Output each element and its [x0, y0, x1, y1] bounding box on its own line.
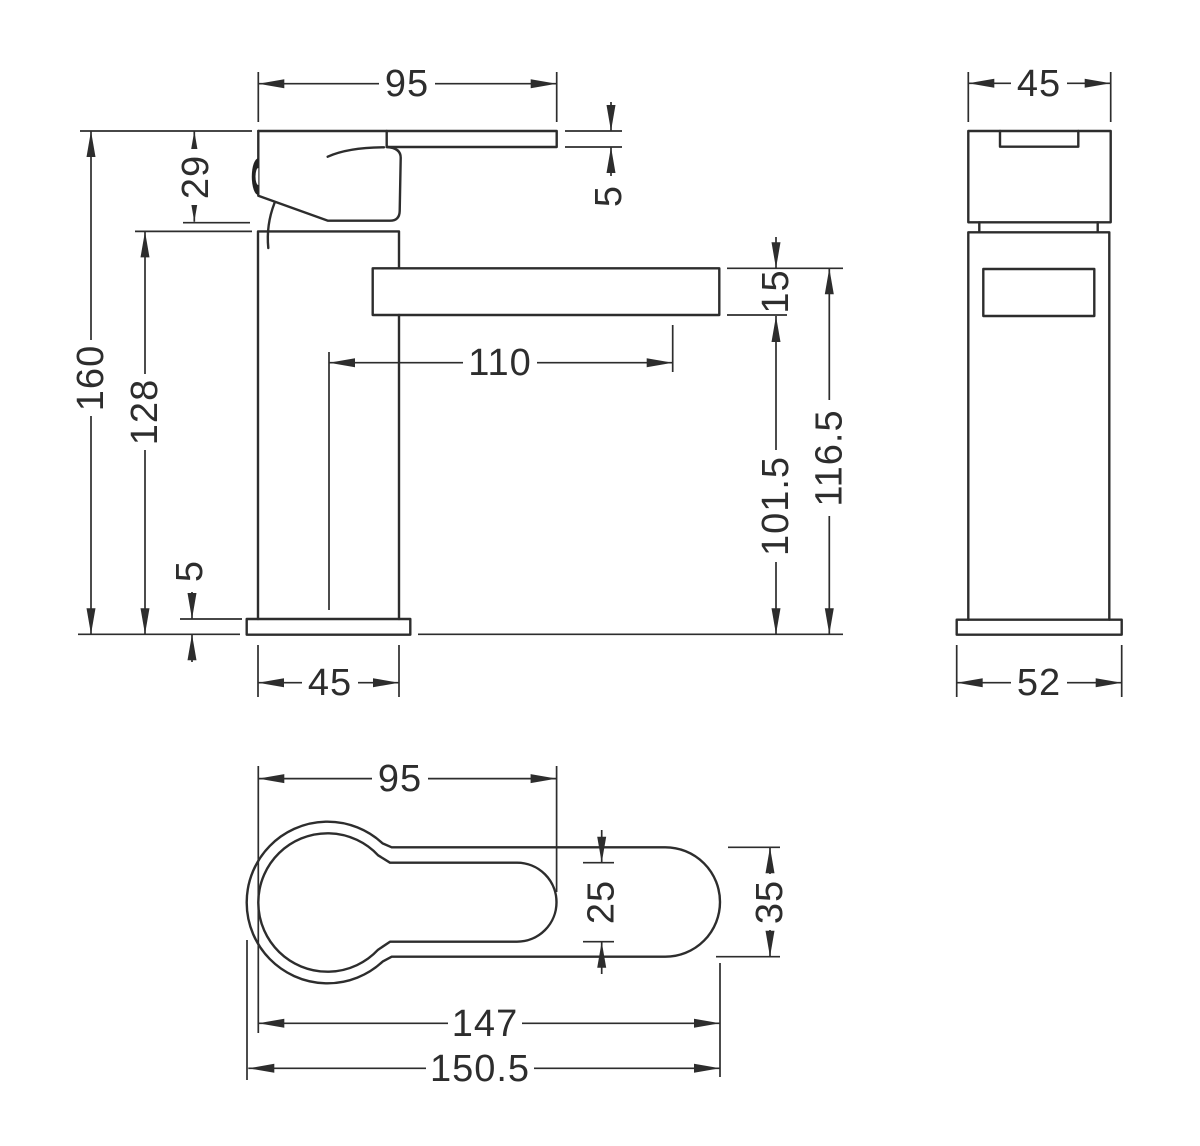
side-lever-notch [1000, 131, 1078, 147]
side-base-outline [957, 620, 1122, 635]
dim-front-body-width: 45 [258, 645, 399, 704]
arrowhead [531, 79, 557, 88]
dim-label: 150.5 [430, 1048, 530, 1090]
arrowhead [329, 358, 355, 367]
tap-technical-drawing: 95 5 29 160 128 [0, 0, 1200, 1146]
arrowhead [188, 593, 197, 619]
front-base-outline [247, 619, 411, 635]
arrowhead [772, 242, 781, 268]
dim-top-handle-width: 25 [581, 830, 623, 974]
dim-front-total-height: 160 [70, 131, 112, 634]
dim-label: 29 [175, 155, 217, 199]
arrowhead [597, 837, 606, 863]
arrowhead [772, 608, 781, 634]
front-lever-outline [258, 131, 556, 147]
arrowhead [373, 678, 399, 687]
dim-label: 95 [385, 63, 429, 105]
arrowhead [258, 79, 284, 88]
side-view [957, 131, 1122, 635]
front-handle-contour-line [328, 147, 384, 156]
dim-label: 160 [70, 345, 112, 411]
arrowhead [141, 608, 150, 634]
dim-front-spout-offset: 110 [329, 325, 673, 610]
dim-label: 45 [1017, 63, 1061, 105]
dim-front-lever-length: 95 [258, 63, 556, 122]
dim-label: 15 [755, 269, 797, 313]
arrowhead [531, 774, 557, 783]
arrowhead [772, 316, 781, 342]
dim-label: 95 [378, 758, 422, 800]
side-outlet-outline [983, 269, 1094, 316]
front-handle-outline [258, 131, 400, 221]
dim-label: 116.5 [808, 409, 850, 506]
arrowhead [188, 634, 197, 660]
dim-side-base-width: 52 [957, 645, 1122, 704]
dim-top-handle-length: 95 [258, 758, 556, 1033]
arrowhead [825, 608, 834, 634]
arrowhead [248, 1064, 274, 1073]
dim-top-spout-width: 35 [716, 847, 791, 956]
top-outer-outline [247, 822, 720, 984]
dim-front-handle-height: 29 [80, 131, 252, 223]
arrowhead [607, 105, 616, 131]
technical-drawing-page: 95 5 29 160 128 [0, 0, 1200, 1146]
top-handle-outline [258, 833, 556, 971]
dim-side-body-width: 45 [968, 63, 1110, 122]
arrowhead [694, 1064, 720, 1073]
dim-front-spout-underside-height: 101.5 [755, 316, 797, 634]
dim-label: 35 [749, 880, 791, 924]
dim-label: 101.5 [755, 456, 797, 556]
dim-front-spout-top-height: 116.5 [808, 268, 850, 634]
dim-front-base-height: 5 [169, 560, 242, 662]
arrowhead [258, 678, 284, 687]
dim-label: 110 [468, 342, 532, 384]
dim-label: 5 [588, 185, 630, 207]
arrowhead [647, 358, 673, 367]
front-handle-neck-line [268, 203, 275, 248]
arrowhead [597, 942, 606, 968]
dim-label: 128 [124, 379, 166, 445]
arrowhead [258, 774, 284, 783]
arrowhead [87, 131, 96, 157]
dim-label: 5 [169, 560, 211, 582]
side-body-outline [968, 232, 1109, 619]
arrowhead [766, 931, 775, 957]
arrowhead [1085, 79, 1111, 88]
side-handle-outline [968, 131, 1110, 222]
arrowhead [957, 678, 983, 687]
arrowhead [141, 231, 150, 257]
dim-label: 52 [1017, 662, 1061, 704]
dim-front-spout-thickness: 15 [727, 237, 843, 315]
arrowhead [968, 79, 994, 88]
arrowhead [258, 1019, 284, 1028]
dim-label: 147 [452, 1003, 518, 1045]
arrowhead [694, 1019, 720, 1028]
front-spout-outline [373, 268, 720, 315]
arrowhead [607, 147, 616, 173]
arrowhead [825, 268, 834, 294]
top-view [247, 822, 720, 984]
dim-label: 45 [308, 662, 352, 704]
dim-front-lever-thickness: 5 [565, 102, 630, 207]
arrowhead [1096, 678, 1122, 687]
dim-label: 25 [581, 880, 623, 924]
arrowhead [87, 608, 96, 634]
arrowhead [766, 847, 775, 873]
